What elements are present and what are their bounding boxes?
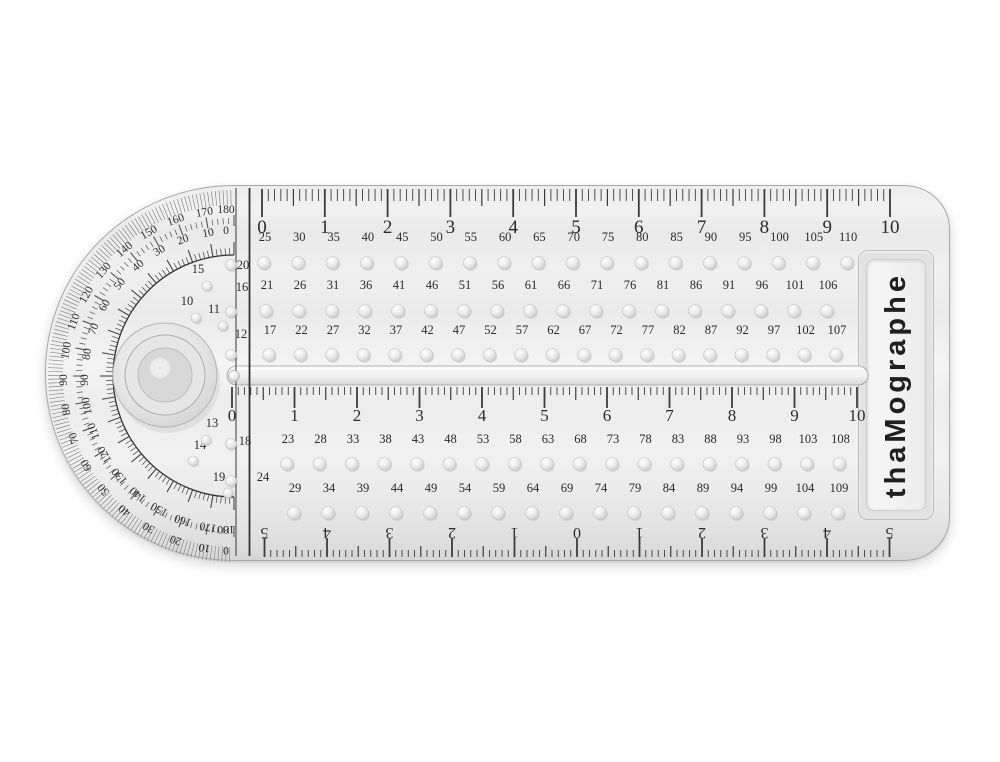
brand-label: thaMographe xyxy=(880,272,913,498)
brand-label-inset: thaMographe xyxy=(866,259,926,511)
brand-label-recess: thaMographe xyxy=(858,250,934,520)
thamographe-tool-body xyxy=(45,185,950,561)
product-photo-stage: thaMographe 0123456789100123456789105432… xyxy=(0,0,1000,762)
